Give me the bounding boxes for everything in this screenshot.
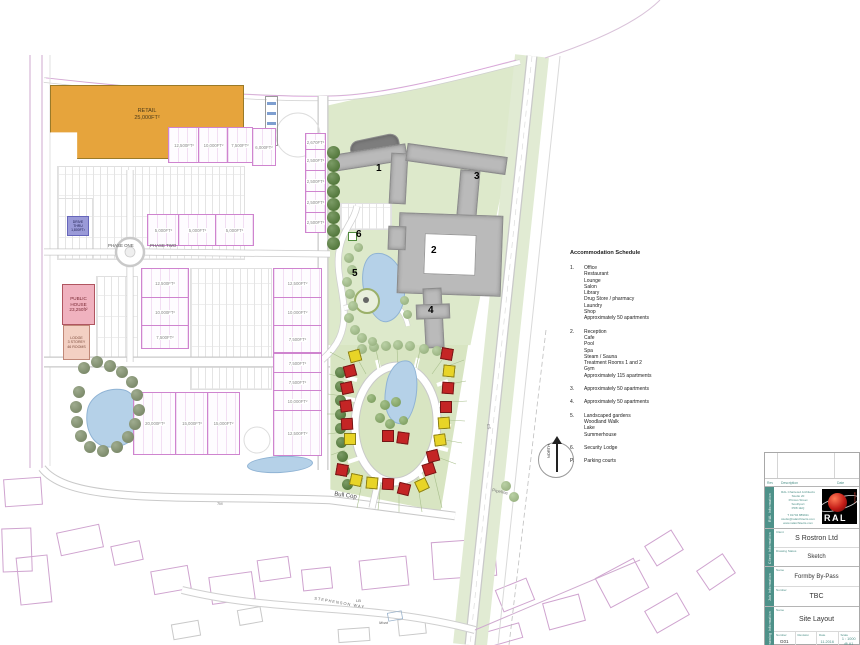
tree-icon (327, 172, 340, 185)
revision-col-description (778, 453, 835, 478)
ral-section-body: RAL Chartered ArchitectsStudio 20Princes… (774, 487, 859, 528)
parking-court (96, 276, 138, 360)
drawing-revision-label: Revision (798, 633, 810, 637)
retail-label: RETAIL 25,000FT² (51, 108, 243, 122)
client-section-bar: Client Information (765, 529, 774, 566)
tree-icon (348, 301, 358, 311)
os-building-outline (56, 524, 104, 557)
retail-unit-area-label: 12,500FT² (173, 143, 195, 148)
os-building-outline (110, 540, 144, 566)
logo-globe-icon (828, 493, 847, 512)
retail-unit: 12,500FT² (141, 268, 189, 299)
tree-icon (71, 416, 83, 428)
phase-one-label: PHASE ONE (108, 243, 134, 249)
drawing-information-section: Drawing Information Name Site Layout Num… (765, 607, 859, 645)
house-yellow (365, 476, 378, 489)
house-red (442, 382, 455, 395)
tree-icon (327, 159, 340, 172)
revision-table: Rev Description Date (765, 453, 859, 487)
lb-label: LB (356, 598, 361, 603)
drawing-name-field: Name Site Layout (774, 607, 859, 632)
phase-two-label: PHASE TWO (150, 243, 176, 249)
key-number-2: 2 (431, 245, 437, 256)
os-building-outline (495, 578, 536, 613)
description-header-label: Description (779, 481, 835, 485)
retail-unit: 6,000FT² (252, 128, 276, 166)
title-block: Rev Description Date RAL Information RAL… (764, 452, 860, 645)
retail-unit-area-label: 12,500FT² (287, 281, 309, 286)
os-building-outline (644, 592, 690, 634)
schedule-item-lines: Approximately 50 apartments (584, 399, 649, 405)
retail-unit-area-label: 5,000FT² (154, 228, 173, 233)
os-building-outline (397, 617, 427, 637)
retail-unit-area-label: 7,500FT² (230, 143, 249, 148)
rev-header-label: Rev (765, 481, 779, 485)
schedule-item: 2.ReceptionCafePoolSpaSteam / SaunaTreat… (570, 329, 720, 379)
tree-icon (405, 341, 415, 351)
retail-unit-area-label: 7,500FT² (155, 335, 174, 340)
house-red (339, 399, 353, 413)
retail-unit-area-label: 2,500FT² (306, 220, 325, 225)
schedule-item-lines: Security Lodge (584, 445, 617, 451)
tree-icon (327, 198, 340, 211)
ral-section-label: RAL Information (768, 493, 772, 522)
client-section-label: Client Information (768, 532, 772, 564)
retail-unit: 12,500FT² (168, 127, 200, 163)
tree-icon (75, 430, 87, 442)
client-name: S Rostron Ltd (795, 535, 838, 542)
north-label: NORTH (546, 444, 551, 458)
retail-unit: 7,500FT² (141, 325, 189, 349)
house-yellow (438, 417, 451, 430)
tree-icon (391, 397, 401, 407)
schedule-item-lines: Parking courts (584, 458, 616, 464)
retail-unit-area-label: 2,670FT² (306, 140, 325, 145)
tree-icon (327, 211, 340, 224)
retail-unit: 10,000FT² (273, 297, 322, 327)
job-number-field: Number TBC (774, 587, 859, 606)
revision-col-date (835, 453, 859, 478)
tree-icon (419, 344, 429, 354)
retail-unit: 7,500FT² (273, 353, 322, 374)
tree-icon (344, 313, 354, 323)
retail-unit: 2,500FT² (305, 170, 326, 193)
schedule-title: Accommodation Schedule (570, 250, 720, 256)
retail-unit-area-label: 10,000FT² (287, 399, 309, 404)
os-building-outline (644, 529, 684, 566)
key-number-6: 6 (356, 229, 362, 240)
retail-unit-area-label: 7,500FT² (288, 337, 307, 342)
house-yellow (344, 433, 356, 445)
ral-section-bar: RAL Information (765, 487, 774, 528)
logo-text: RAL (824, 513, 847, 523)
tree-icon (133, 404, 145, 416)
tree-icon (122, 431, 134, 443)
key-number-1: 1 (376, 163, 382, 174)
moat-label: Moat (379, 620, 388, 625)
house-red (341, 418, 354, 431)
tree-icon (126, 376, 138, 388)
tree-icon (400, 296, 409, 305)
retail-unit-area-label: 2,500FT² (306, 179, 325, 184)
retail-unit: 10,000FT² (273, 390, 322, 412)
tree-icon (342, 277, 352, 287)
retail-unit-area-label: 10,000FT² (203, 143, 225, 148)
schedule-item-number: P. (570, 458, 584, 464)
house-red (340, 381, 354, 395)
tree-icon (393, 340, 403, 350)
accommodation-schedule: Accommodation Schedule 1.OfficeRestauran… (570, 250, 720, 471)
tree-icon (73, 386, 85, 398)
tree-icon (344, 253, 354, 263)
retail-unit-area-label: 12,500FT² (287, 431, 309, 436)
os-building-outline (150, 565, 192, 595)
revision-col-rev (765, 453, 778, 478)
north-arrow: NORTH (538, 436, 574, 478)
job-name-field: Name Formby By-Pass (774, 567, 859, 587)
retail-unit: 2,500FT² (305, 149, 326, 172)
retail-unit-area-label: 5,000FT² (188, 228, 207, 233)
site-layout-drawing: RETAIL 25,000FT² PUBLIC HOUSE 23,250ft² … (0, 0, 860, 645)
schedule-items: 1.OfficeRestaurantLoungeSalonLibraryDrug… (570, 265, 720, 464)
retail-unit-area-label: 6,000FT² (254, 145, 273, 150)
tree-icon (116, 366, 128, 378)
drawing-date-field: Date 11.2016 (817, 632, 839, 645)
tree-icon (78, 362, 90, 374)
os-building-outline (595, 558, 650, 609)
seven-m-label: 7M (217, 501, 223, 506)
retail-unit-area-label: 15,000FT² (181, 421, 203, 426)
retail-unit: 7,500FT² (227, 127, 253, 163)
tree-icon (70, 401, 82, 413)
os-building-outline (257, 556, 292, 582)
house-red (440, 347, 454, 361)
tree-icon (84, 441, 96, 453)
retail-unit-area-label: 15,000FT² (213, 421, 235, 426)
drive-thru-label: DRIVE THRU 1,800FT² (71, 220, 85, 233)
schedule-item: 4.Approximately 50 apartments (570, 399, 720, 405)
retail-unit-area-label: 2,500FT² (306, 200, 325, 205)
house-yellow (442, 364, 455, 377)
tree-icon (385, 419, 395, 429)
house-yellow (433, 433, 447, 447)
site-plan: RETAIL 25,000FT² PUBLIC HOUSE 23,250ft² … (0, 0, 860, 645)
north-arrow-shaft (556, 442, 558, 472)
drawing-name-label: Name (776, 608, 784, 612)
schedule-item-number: 1. (570, 265, 584, 322)
schedule-item-lines: Approximately 50 apartments (584, 386, 649, 392)
house-red (396, 431, 410, 445)
house-red (335, 463, 349, 477)
client-field-label: Client (776, 530, 784, 534)
drive-thru-building: DRIVE THRU 1,800FT² (67, 216, 89, 236)
key-number-4: 4 (428, 305, 434, 316)
drawing-meta-row: Number G01 Revision Date 11.2016 Scale 1… (774, 632, 859, 645)
tree-icon (357, 333, 367, 343)
tree-icon (399, 416, 408, 425)
os-building-outline (1, 527, 33, 572)
ral-logo: RAL architects (822, 489, 857, 524)
retail-unit: 15,000FT² (175, 392, 209, 455)
status-field-label: Drawing Status (776, 549, 796, 553)
os-building-outline (338, 627, 371, 643)
house-red (440, 401, 452, 413)
os-building-outline (237, 606, 263, 626)
drawing-scale-field: Scale 1 : 1000@ A1 (839, 632, 860, 645)
os-building-outline (208, 571, 255, 605)
drawing-section-bar: Drawing Information (765, 607, 774, 645)
public-house-label: PUBLIC HOUSE 23,250ft² (69, 296, 87, 313)
schedule-item-lines: Landscaped gardensWoodland WalkLakeSumme… (584, 413, 631, 438)
logo-subtext: architects (853, 492, 856, 503)
drawing-revision-field: Revision (796, 632, 818, 645)
schedule-item-lines: ReceptionCafePoolSpaSteam / SaunaTreatme… (584, 329, 651, 379)
client-field: Client S Rostron Ltd (774, 529, 859, 548)
tree-icon (509, 492, 519, 502)
drawing-date: 11.2016 (821, 640, 834, 644)
schedule-item-number: 2. (570, 329, 584, 379)
retail-unit: 10,000FT² (141, 297, 189, 327)
job-information-section: Job Information Name Formby By-Pass Numb… (765, 567, 859, 607)
retail-unit-area-label: 20,000FT² (144, 421, 166, 426)
retail-unit: 12,500FT² (273, 268, 322, 299)
ral-information-section: RAL Information RAL Chartered Architects… (765, 487, 859, 529)
schedule-item-number: 6. (570, 445, 584, 451)
retail-unit-area-label: 7,500FT² (288, 361, 307, 366)
schedule-item-number: 3. (570, 386, 584, 392)
os-building-outline (431, 538, 497, 580)
summerhouse (354, 288, 380, 314)
lodge-label: LODGE 3 STOREY 46 ROOMS (67, 336, 86, 349)
tree-icon (368, 337, 377, 346)
public-house-building: PUBLIC HOUSE 23,250ft² (62, 284, 95, 325)
revision-header: Rev Description Date (765, 478, 859, 486)
schedule-item: P.Parking courts (570, 458, 720, 464)
retail-unit: 10,000FT² (198, 127, 229, 163)
retail-unit-area-label: 12,500FT² (154, 281, 176, 286)
tree-icon (97, 445, 109, 457)
tree-icon (375, 413, 385, 423)
building-2-gable (388, 226, 407, 251)
tree-icon (129, 418, 141, 430)
house-red (382, 430, 394, 442)
drawing-date-label: Date (819, 633, 825, 637)
job-section-label: Job Information (768, 573, 772, 601)
parking-court (340, 203, 392, 230)
retail-unit-area-label: 2,500FT² (306, 158, 325, 163)
os-building-outline (359, 556, 410, 591)
drawing-section-label: Drawing Information (768, 611, 772, 645)
key-number-5: 5 (352, 268, 358, 279)
retail-unit: 7,500FT² (273, 372, 322, 392)
ral-address: RAL Chartered ArchitectsStudio 20Princes… (774, 487, 822, 528)
tree-icon (104, 360, 116, 372)
retail-unit: 5,000FT² (147, 214, 180, 246)
drawing-number-field: Number G01 (774, 632, 796, 645)
schedule-item: 3.Approximately 50 apartments (570, 386, 720, 392)
job-name-label: Name (776, 568, 784, 572)
tree-icon (91, 356, 103, 368)
job-section-bar: Job Information (765, 567, 774, 606)
schedule-item-number: 5. (570, 413, 584, 438)
os-building-outline (171, 620, 201, 641)
lodge-building: LODGE 3 STOREY 46 ROOMS (63, 325, 90, 360)
os-building-outline (542, 594, 586, 631)
south-pond (247, 454, 314, 474)
retail-unit: 2,500FT² (305, 191, 326, 214)
os-building-outline (3, 477, 43, 508)
os-building-outline (301, 566, 333, 591)
retail-unit-area-label: 10,000FT² (154, 310, 176, 315)
tree-icon (380, 400, 390, 410)
tree-icon (381, 341, 391, 351)
tree-icon (111, 441, 123, 453)
north-arrow-head (552, 436, 562, 444)
tree-icon (327, 224, 340, 237)
os-building-outline (696, 553, 736, 591)
retail-unit-area-label: 7,500FT² (288, 380, 307, 385)
house-red (382, 478, 395, 491)
tree-icon (327, 146, 340, 159)
drawing-scale: 1 : 1000@ A1 (842, 637, 856, 645)
job-number-label: Number (776, 588, 787, 592)
parking-court (190, 268, 272, 390)
drawing-number: G01 (780, 639, 789, 644)
drawing-status-field: Drawing Status Sketch (774, 548, 859, 566)
date-header-label: Date (835, 481, 859, 485)
drawing-name: Site Layout (799, 616, 834, 623)
tree-icon (327, 185, 340, 198)
schedule-item: 6.Security Lodge (570, 445, 720, 451)
job-name: Formby By-Pass (794, 574, 838, 580)
drawing-status: Sketch (807, 554, 825, 560)
drawing-number-label: Number (776, 633, 787, 637)
schedule-item: 5.Landscaped gardensWoodland WalkLakeSum… (570, 413, 720, 438)
tree-icon (403, 310, 412, 319)
retail-unit: 15,000FT² (207, 392, 240, 455)
retail-unit: 2,500FT² (305, 212, 326, 233)
drawing-scale-label: Scale (841, 633, 849, 637)
cs-label: CS (486, 423, 492, 429)
tree-icon (367, 394, 376, 403)
retail-unit: 12,500FT² (273, 410, 322, 456)
tree-icon (131, 389, 143, 401)
house-yellow (349, 473, 363, 487)
tree-icon (354, 243, 363, 252)
tree-icon (327, 237, 340, 250)
job-number: TBC (810, 593, 824, 600)
revision-rows (765, 453, 859, 478)
key-number-3: 3 (474, 171, 480, 182)
retail-unit-area-label: 5,000FT² (225, 228, 244, 233)
client-information-section: Client Information Client S Rostron Ltd … (765, 529, 859, 567)
schedule-item-number: 4. (570, 399, 584, 405)
retail-unit: 7,500FT² (273, 325, 322, 353)
schedule-item-lines: OfficeRestaurantLoungeSalonLibraryDrug S… (584, 265, 649, 322)
schedule-item: 1.OfficeRestaurantLoungeSalonLibraryDrug… (570, 265, 720, 322)
tree-icon (337, 451, 348, 462)
retail-unit: 5,000FT² (215, 214, 254, 246)
os-building-outline (477, 622, 524, 645)
tree-icon (345, 289, 355, 299)
retail-unit: 5,000FT² (178, 214, 217, 246)
retail-unit-area-label: 10,000FT² (287, 310, 309, 315)
